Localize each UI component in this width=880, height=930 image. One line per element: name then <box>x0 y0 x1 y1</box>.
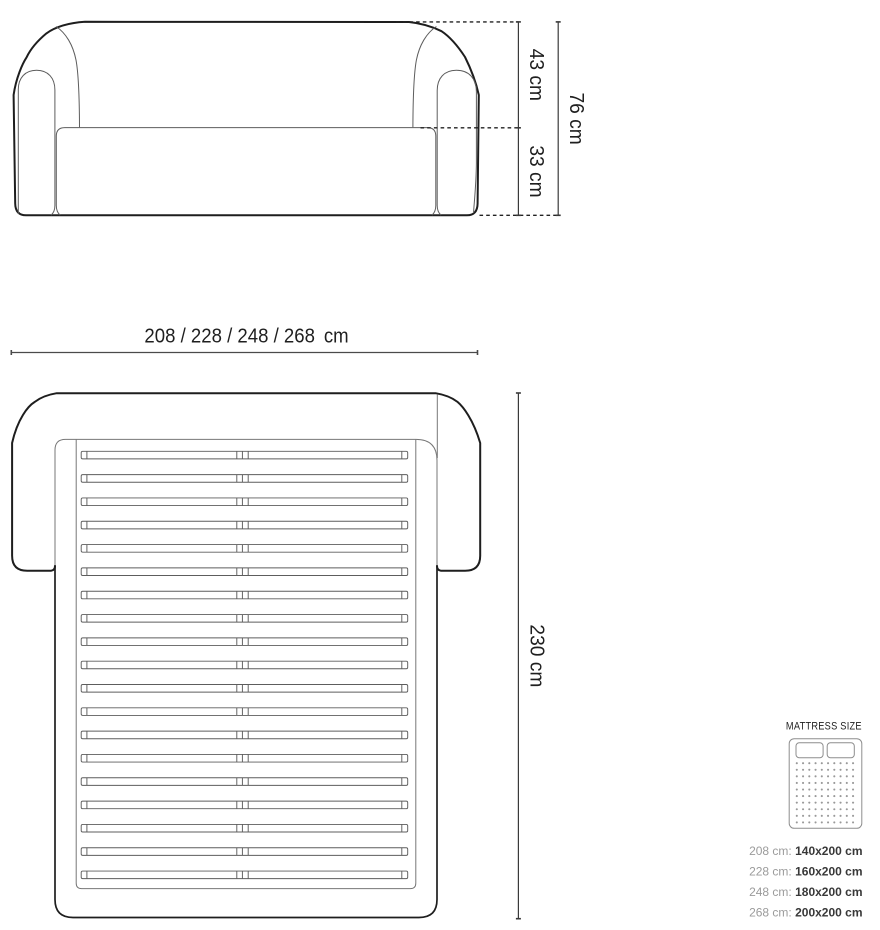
svg-text:33 cm: 33 cm <box>525 145 547 197</box>
svg-text:MATTRESS SIZE: MATTRESS SIZE <box>786 721 862 733</box>
svg-text:76 cm: 76 cm <box>565 92 587 144</box>
svg-text:228 cm: 160x200 cm: 228 cm: 160x200 cm <box>749 865 862 879</box>
svg-text:208 / 228 / 248 / 268 cm: 208 / 228 / 248 / 268 cm <box>144 326 348 348</box>
svg-text:268 cm: 200x200 cm: 268 cm: 200x200 cm <box>749 905 862 919</box>
svg-text:208 cm: 140x200 cm: 208 cm: 140x200 cm <box>749 844 862 858</box>
svg-text:43 cm: 43 cm <box>525 49 547 101</box>
svg-text:230 cm: 230 cm <box>525 624 547 687</box>
svg-text:248 cm: 180x200 cm: 248 cm: 180x200 cm <box>749 885 862 899</box>
